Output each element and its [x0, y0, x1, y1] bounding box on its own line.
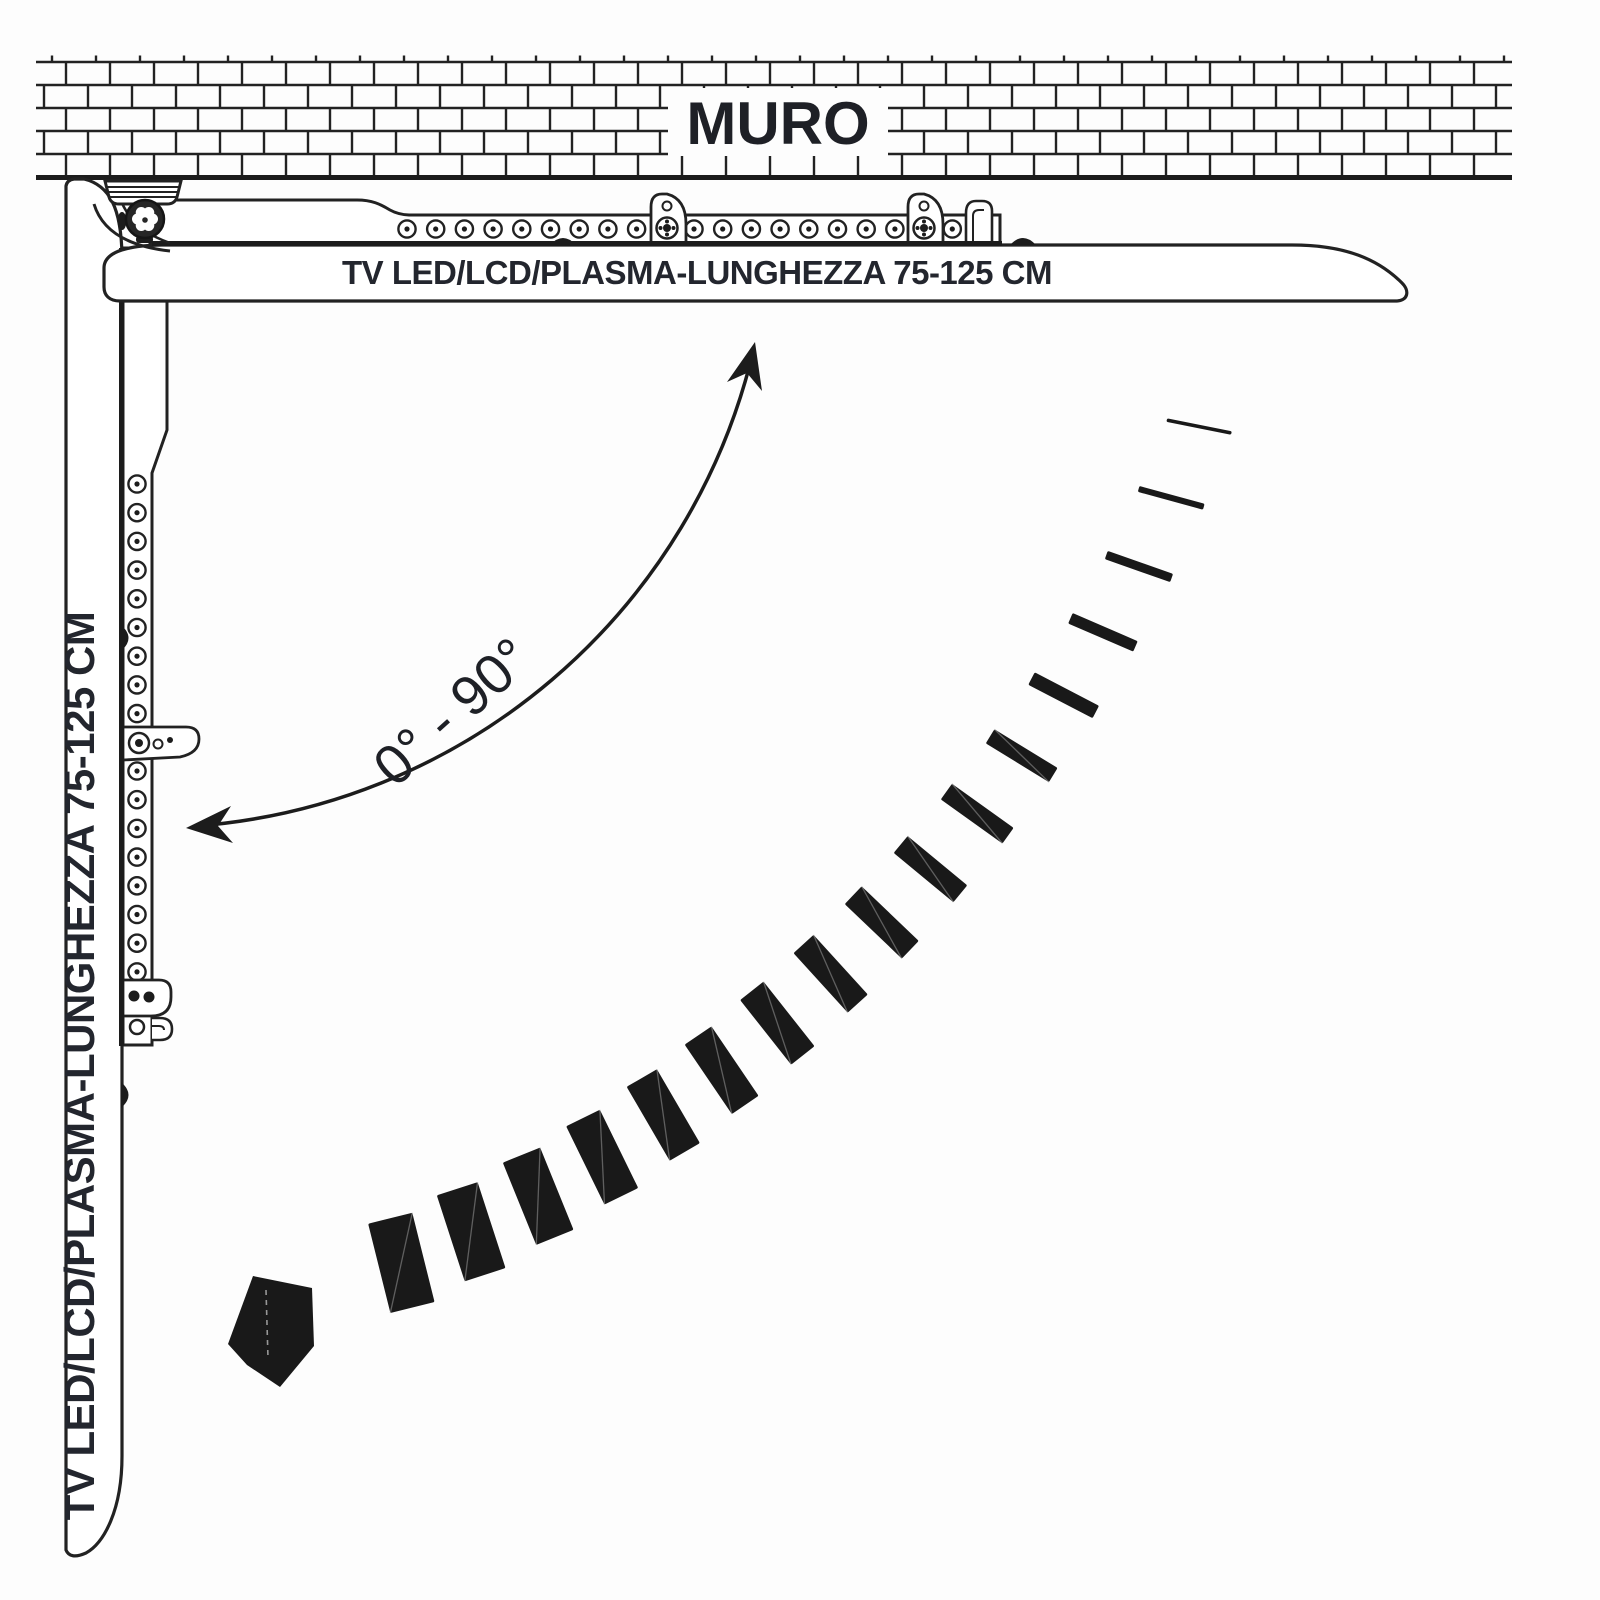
tv-vertical: TV LED/LCD/PLASMA-LUNGHEZZA 75-125 CM: [56, 179, 129, 1556]
safety-hook-vertical: [152, 1018, 172, 1040]
swing-trail-segment: [1166, 418, 1231, 434]
rotation-angle-label: 0° - 90°: [361, 625, 543, 798]
swing-direction-arrow-icon: [228, 1276, 314, 1387]
swing-trail-segment: [894, 836, 968, 902]
swing-trail-segment: [941, 784, 1014, 844]
mounting-pad: [1010, 238, 1036, 245]
mount-rail-vertical: [123, 248, 199, 1045]
swing-trail-segment: [740, 982, 814, 1065]
rotation-arc-path: [196, 352, 753, 826]
swing-trail-segment: [685, 1026, 759, 1114]
brick-wall: MURO: [36, 56, 1512, 178]
swing-trail-segment: [1028, 672, 1099, 718]
clamp-bracket-vertical-1: [123, 727, 199, 760]
swing-trail-segment: [503, 1148, 574, 1245]
clamp-bracket-horizontal-2: [908, 194, 943, 243]
swing-trail-segment: [1068, 613, 1138, 652]
swing-trail: [368, 418, 1232, 1313]
pivot-hinge-icon: [126, 200, 164, 238]
diagram-canvas: MURO: [0, 0, 1600, 1600]
swing-trail-segment: [437, 1182, 506, 1281]
safety-hook-horizontal: [966, 201, 992, 243]
swing-trail-segment: [986, 729, 1058, 782]
tv-horizontal-label: TV LED/LCD/PLASMA-LUNGHEZZA 75-125 CM: [342, 254, 1052, 291]
rail-bar-vertical: [123, 248, 167, 1045]
tv-vertical-label: TV LED/LCD/PLASMA-LUNGHEZZA 75-125 CM: [56, 612, 103, 1521]
swing-trail-segment: [368, 1213, 435, 1313]
swing-trail-segment: [1105, 551, 1173, 582]
tv-horizontal: TV LED/LCD/PLASMA-LUNGHEZZA 75-125 CM: [104, 238, 1407, 301]
swing-trail-segment: [793, 935, 867, 1013]
clamp-bracket-horizontal-1: [651, 194, 686, 243]
rotation-arc: 0° - 90°: [186, 342, 762, 843]
swing-trail-segment: [845, 886, 919, 958]
mount-rail-horizontal: [150, 194, 1000, 243]
swing-trail-segment: [566, 1110, 638, 1205]
mounting-pad: [121, 1082, 129, 1108]
swing-trail-segment: [627, 1069, 700, 1161]
swing-trail-segment: [1138, 486, 1205, 510]
wall-label: MURO: [686, 90, 869, 157]
